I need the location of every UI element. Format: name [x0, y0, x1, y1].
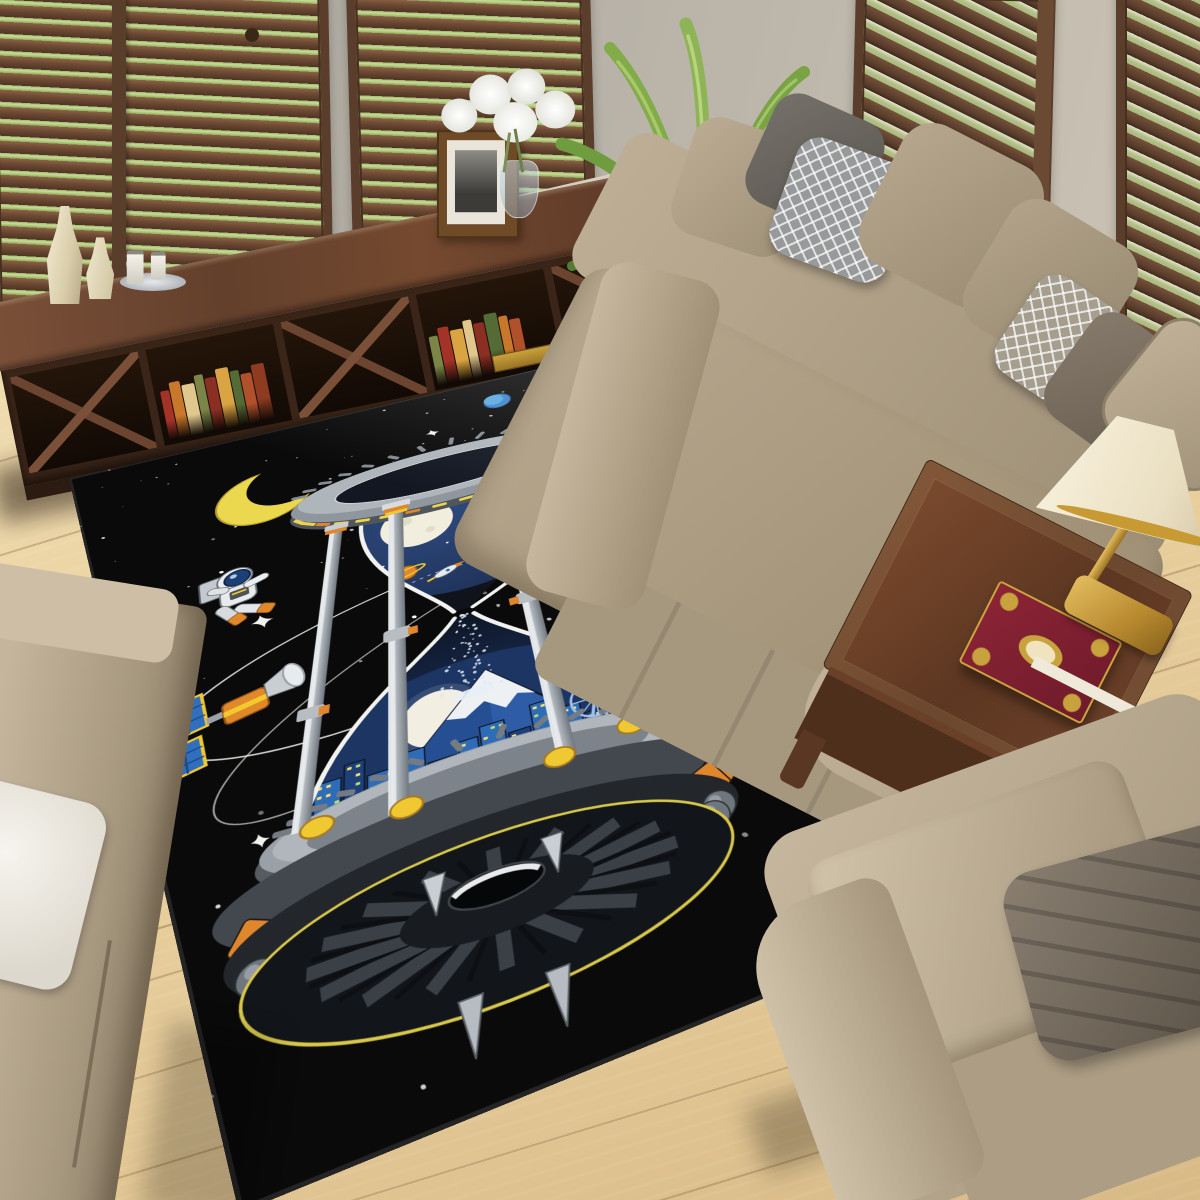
x-divider [296, 296, 413, 418]
living-room-scene [0, 0, 1200, 1200]
console-cubby [10, 351, 157, 473]
candle [127, 250, 144, 284]
shutter-knob [245, 28, 259, 42]
x-divider [25, 351, 142, 473]
vase-small [86, 237, 114, 299]
shelf-books [157, 352, 288, 441]
candle [151, 252, 166, 280]
coffee-table-leg [778, 729, 827, 791]
console-cubby [145, 324, 292, 446]
